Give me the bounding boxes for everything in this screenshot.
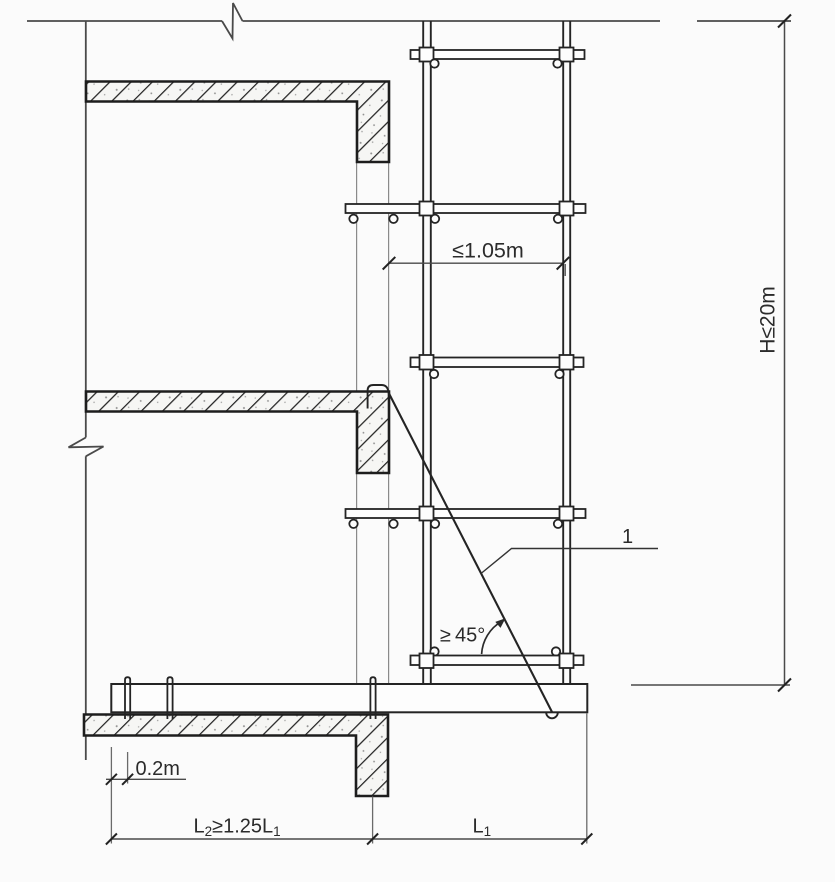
svg-text:H≤20m: H≤20m [757,286,780,354]
svg-text:0.2m: 0.2m [136,758,180,780]
svg-text:≤1.05m: ≤1.05m [452,239,524,263]
svg-text:1: 1 [622,526,633,548]
svg-text:≥ 45°: ≥ 45° [440,625,485,647]
